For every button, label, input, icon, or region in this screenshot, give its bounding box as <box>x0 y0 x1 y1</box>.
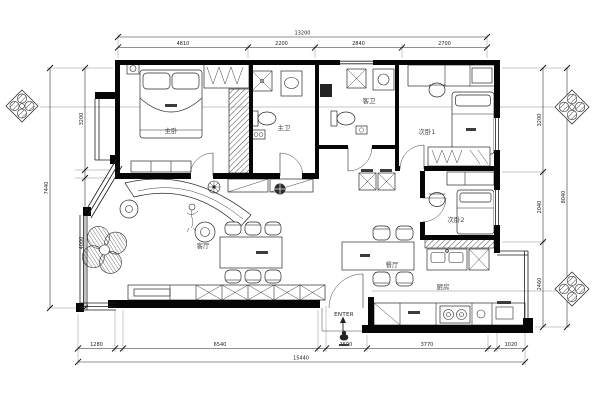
label-master-bath: 主卫 <box>278 123 292 132</box>
floor-plan-canvas: 4810 2200 2840 2700 13200 1280 6540 1500… <box>0 0 600 400</box>
interior-doors <box>190 153 213 176</box>
axis-ornament-left <box>6 90 38 122</box>
dim-top-seg2: 2200 <box>275 41 288 47</box>
corridor-cabinets <box>228 169 395 192</box>
dim-top-seg3: 2840 <box>352 41 365 47</box>
tv-cabinet <box>128 285 325 300</box>
plant-icon <box>208 181 220 193</box>
label-living-room: 客厅 <box>197 241 211 250</box>
label-enter: ENTER <box>334 312 354 318</box>
dim-top-seg1: 4810 <box>177 41 190 47</box>
guest-bath-fixtures <box>320 69 394 171</box>
floor-lamp-icon <box>275 184 286 195</box>
dim-bottom-total: 15440 <box>293 356 309 362</box>
dim-left-seg1: 3200 <box>79 113 85 126</box>
dim-right-seg1: 3200 <box>537 114 543 127</box>
axis-ornament-right-bottom <box>555 272 589 306</box>
dim-right-seg3: 2460 <box>537 278 543 291</box>
dim-left-total: 7440 <box>44 182 50 195</box>
dim-right-seg2: 2040 <box>537 201 543 214</box>
dim-bottom-seg5: 1020 <box>505 342 518 348</box>
dim-bottom-seg2: 6540 <box>214 342 227 348</box>
dim-bottom-seg4: 3770 <box>421 342 434 348</box>
bedroom2-furniture <box>422 172 494 234</box>
entry-door-area <box>322 274 363 346</box>
dim-right-total: 8040 <box>561 191 567 204</box>
floor-plan-drawing: 4810 2200 2840 2700 13200 1280 6540 1500… <box>0 0 600 400</box>
label-guest-bath: 客卫 <box>363 96 377 105</box>
label-master-bedroom: 主卧 <box>165 126 179 135</box>
bedroom1-furniture <box>400 65 495 169</box>
label-kitchen: 厨房 <box>437 282 450 291</box>
dim-top-seg4: 2700 <box>438 41 451 47</box>
label-bedroom-2: 次卧2 <box>447 215 464 224</box>
label-dining-room: 餐厅 <box>386 260 400 269</box>
label-bedroom-1: 次卧1 <box>418 127 435 136</box>
enter-arrow-icon <box>340 317 346 332</box>
axis-ornament-right-top <box>555 90 589 124</box>
dim-top-total: 13200 <box>295 31 311 37</box>
living-room-furniture <box>80 179 325 300</box>
master-bedroom-furniture <box>127 63 250 173</box>
dining-room-furniture <box>342 226 414 286</box>
dim-bottom-seg1: 1280 <box>90 342 103 348</box>
